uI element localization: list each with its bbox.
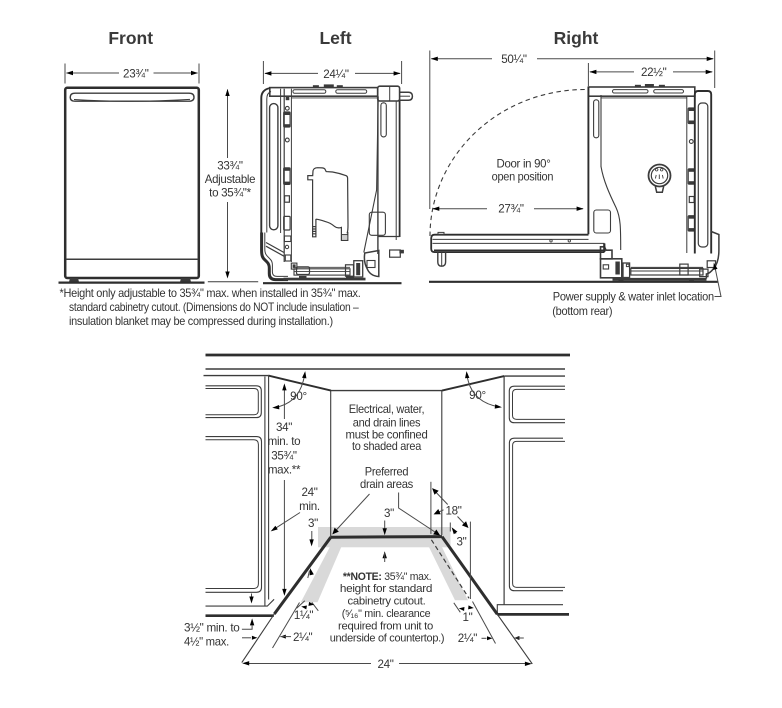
svg-text:Preferred: Preferred (365, 466, 409, 479)
svg-text:50¼": 50¼" (501, 53, 527, 66)
svg-text:Front: Front (108, 28, 153, 48)
svg-text:(bottom rear): (bottom rear) (552, 305, 612, 318)
svg-text:underside of countertop.): underside of countertop.) (330, 633, 445, 645)
svg-text:to shaded area: to shaded area (352, 440, 422, 453)
svg-text:24": 24" (377, 658, 393, 671)
svg-text:4½" max.: 4½" max. (184, 636, 229, 649)
svg-text:22½": 22½" (641, 66, 667, 79)
svg-text:3": 3" (457, 536, 467, 549)
svg-text:1": 1" (463, 611, 473, 624)
svg-text:required from unit to: required from unit to (338, 620, 433, 632)
svg-text:24¼": 24¼" (323, 68, 349, 81)
svg-text:insulation blanket may be comp: insulation blanket may be compressed dur… (69, 315, 333, 328)
svg-text:min.: min. (299, 500, 320, 513)
svg-text:max.**: max.** (268, 464, 301, 477)
svg-text:90°: 90° (469, 389, 486, 402)
svg-text:27¾": 27¾" (498, 203, 524, 216)
svg-text:min. to: min. to (268, 435, 301, 448)
svg-text:Adjustable: Adjustable (205, 173, 256, 186)
svg-text:standard cabinetry cutout. (Di: standard cabinetry cutout. (Dimensions d… (69, 301, 359, 314)
svg-text:cabinetry cutout.: cabinetry cutout. (348, 596, 426, 608)
svg-text:18": 18" (445, 505, 461, 518)
svg-text:24": 24" (301, 486, 317, 499)
svg-text:Electrical, water,: Electrical, water, (349, 403, 425, 416)
svg-text:and drain lines: and drain lines (353, 416, 421, 429)
svg-text:23¾": 23¾" (123, 68, 149, 81)
svg-text:3½" min. to: 3½" min. to (184, 622, 240, 635)
svg-text:height for standard: height for standard (340, 583, 432, 595)
svg-text:(⁵⁄₁₆" min. clearance: (⁵⁄₁₆" min. clearance (342, 608, 431, 620)
svg-text:34": 34" (276, 421, 292, 434)
svg-text:to 35¾"*: to 35¾"* (209, 187, 251, 200)
svg-text:*Height only adjustable to 35¾: *Height only adjustable to 35¾" max. whe… (60, 287, 361, 300)
svg-text:3": 3" (384, 507, 394, 520)
svg-text:1¼": 1¼" (294, 609, 314, 622)
svg-text:3": 3" (308, 517, 318, 530)
svg-text:2¼": 2¼" (293, 631, 313, 644)
svg-text:Door in 90°: Door in 90° (497, 157, 551, 170)
svg-text:open position: open position (492, 171, 554, 184)
svg-text:33¾": 33¾" (217, 160, 243, 173)
svg-text:Left: Left (319, 28, 351, 48)
svg-text:**NOTE: 35¾" max.: **NOTE: 35¾" max. (343, 571, 432, 583)
svg-text:2¼": 2¼" (458, 632, 478, 645)
svg-text:Power supply & water inlet loc: Power supply & water inlet location (553, 291, 714, 304)
svg-text:drain areas: drain areas (360, 478, 413, 491)
svg-text:Right: Right (554, 28, 599, 48)
svg-text:35¾": 35¾" (271, 450, 297, 463)
